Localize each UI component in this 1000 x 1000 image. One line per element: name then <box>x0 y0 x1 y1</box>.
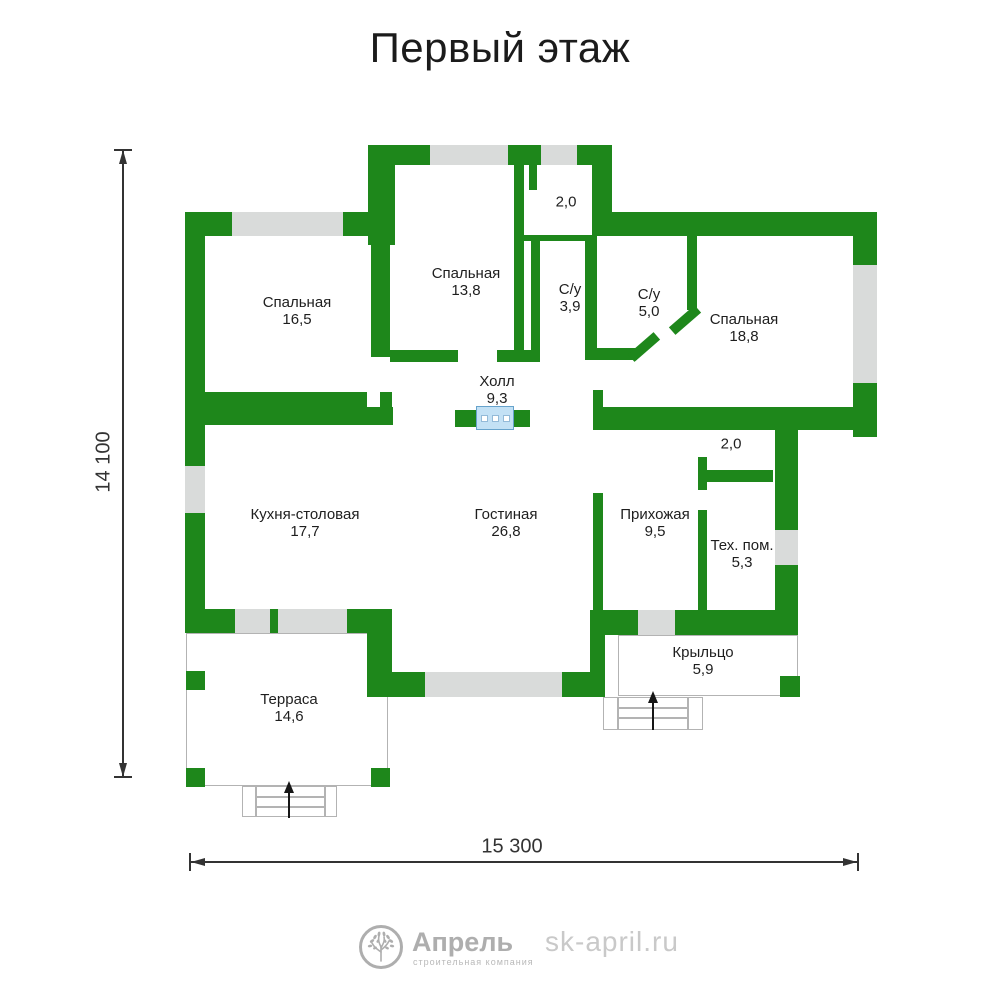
room-name: Прихожая <box>620 506 690 523</box>
room-area: 3,9 <box>559 298 582 315</box>
area-annotation-niche: 2,0 <box>556 194 577 211</box>
floor-plan-page: Первый этаж <box>0 0 1000 1000</box>
tree-icon <box>362 928 400 966</box>
room-label-tech-room: Тех. пом. 5,3 <box>710 537 773 571</box>
terrace-pillar <box>186 671 205 690</box>
room-name: Кухня-столовая <box>251 506 360 523</box>
room-name: С/у <box>559 281 582 298</box>
wall-segment <box>205 407 393 425</box>
terrace-pillar <box>186 768 205 787</box>
page-title: Первый этаж <box>0 24 1000 72</box>
wall-segment <box>593 493 603 610</box>
room-area: 5,9 <box>672 661 733 678</box>
wall-segment <box>390 350 458 362</box>
room-label-living-room: Гостиная 26,8 <box>475 506 538 540</box>
dimension-end-tick <box>857 853 859 871</box>
room-area: 2,0 <box>556 194 577 211</box>
stair-line <box>255 786 257 817</box>
wall-segment <box>592 212 877 236</box>
door-opening <box>638 610 675 635</box>
door-leaf-wall <box>669 305 701 335</box>
wall-segment <box>593 407 877 430</box>
vent-grille <box>476 406 514 430</box>
up-arrow-icon <box>284 781 294 793</box>
width-dimension-label: 15 300 <box>481 836 542 859</box>
up-arrow-icon <box>648 691 658 703</box>
stair-line <box>324 786 326 817</box>
horizontal-dimension-line <box>191 861 857 863</box>
arrowhead-icon <box>119 763 127 777</box>
wall-segment <box>514 235 592 241</box>
terrace-pillar <box>371 768 390 787</box>
window-opening <box>775 530 798 565</box>
wall-segment <box>185 236 205 633</box>
room-area: 5,0 <box>638 303 661 320</box>
wall-segment <box>514 165 524 362</box>
wall-segment <box>380 392 392 407</box>
room-name: Гостиная <box>475 506 538 523</box>
room-label-bathroom-1: С/у 3,9 <box>559 281 582 315</box>
room-name: Спальная <box>710 311 779 328</box>
window-opening <box>853 265 877 383</box>
room-area: 18,8 <box>710 328 779 345</box>
stair-step <box>255 806 326 808</box>
wall-segment <box>687 232 697 310</box>
room-label-entry-hall: Прихожая 9,5 <box>620 506 690 540</box>
room-label-kitchen: Кухня-столовая 17,7 <box>251 506 360 540</box>
room-label-bedroom-3: Спальная 18,8 <box>710 311 779 345</box>
stair-step <box>255 796 326 798</box>
room-name: С/у <box>638 286 661 303</box>
room-label-terrace: Терраса 14,6 <box>260 691 318 725</box>
window-opening <box>232 212 343 236</box>
area-annotation-closet: 2,0 <box>721 436 742 453</box>
stair-line <box>617 697 619 730</box>
wall-segment <box>698 470 773 482</box>
room-area: 9,3 <box>479 390 514 407</box>
arrowhead-icon <box>119 150 127 164</box>
window-opening <box>185 466 205 513</box>
room-label-bedroom-2: Спальная 13,8 <box>432 265 501 299</box>
room-name: Крыльцо <box>672 644 733 661</box>
room-name: Тех. пом. <box>710 537 773 554</box>
brand-tagline: строительная компания <box>413 957 534 967</box>
porch-pillar <box>780 676 800 697</box>
wall-segment <box>592 145 612 212</box>
room-area: 9,5 <box>620 523 690 540</box>
room-label-bedroom-1: Спальная 16,5 <box>263 294 332 328</box>
room-name: Спальная <box>263 294 332 311</box>
height-dimension-label: 14 100 <box>93 431 116 492</box>
wall-segment <box>598 610 798 635</box>
arrowhead-icon <box>843 858 857 866</box>
room-area: 2,0 <box>721 436 742 453</box>
window-opening <box>430 145 508 165</box>
room-name: Холл <box>479 373 514 390</box>
stair-line <box>687 697 689 730</box>
room-label-porch: Крыльцо 5,9 <box>672 644 733 678</box>
window-opening <box>425 672 562 697</box>
room-name: Спальная <box>432 265 501 282</box>
window-opening <box>278 609 347 633</box>
up-arrow-icon <box>652 702 654 730</box>
arrowhead-icon <box>191 858 205 866</box>
room-area: 13,8 <box>432 282 501 299</box>
room-label-hall: Холл 9,3 <box>479 373 514 407</box>
window-opening <box>235 609 270 633</box>
window-opening <box>541 145 577 165</box>
room-label-bathroom-2: С/у 5,0 <box>638 286 661 320</box>
vertical-dimension-line <box>122 151 124 777</box>
door-leaf-wall <box>628 332 660 362</box>
wall-segment <box>371 240 390 357</box>
brand-name: Апрель <box>412 927 513 958</box>
room-name: Терраса <box>260 691 318 708</box>
wall-segment <box>585 235 597 350</box>
website-url: sk-april.ru <box>545 926 679 958</box>
room-area: 16,5 <box>263 311 332 328</box>
room-area: 14,6 <box>260 708 318 725</box>
wall-segment <box>698 510 707 610</box>
wall-segment <box>185 392 367 408</box>
wall-segment <box>531 241 540 350</box>
room-area: 5,3 <box>710 554 773 571</box>
wall-segment <box>529 165 537 190</box>
up-arrow-icon <box>288 792 290 818</box>
room-area: 17,7 <box>251 523 360 540</box>
room-area: 26,8 <box>475 523 538 540</box>
